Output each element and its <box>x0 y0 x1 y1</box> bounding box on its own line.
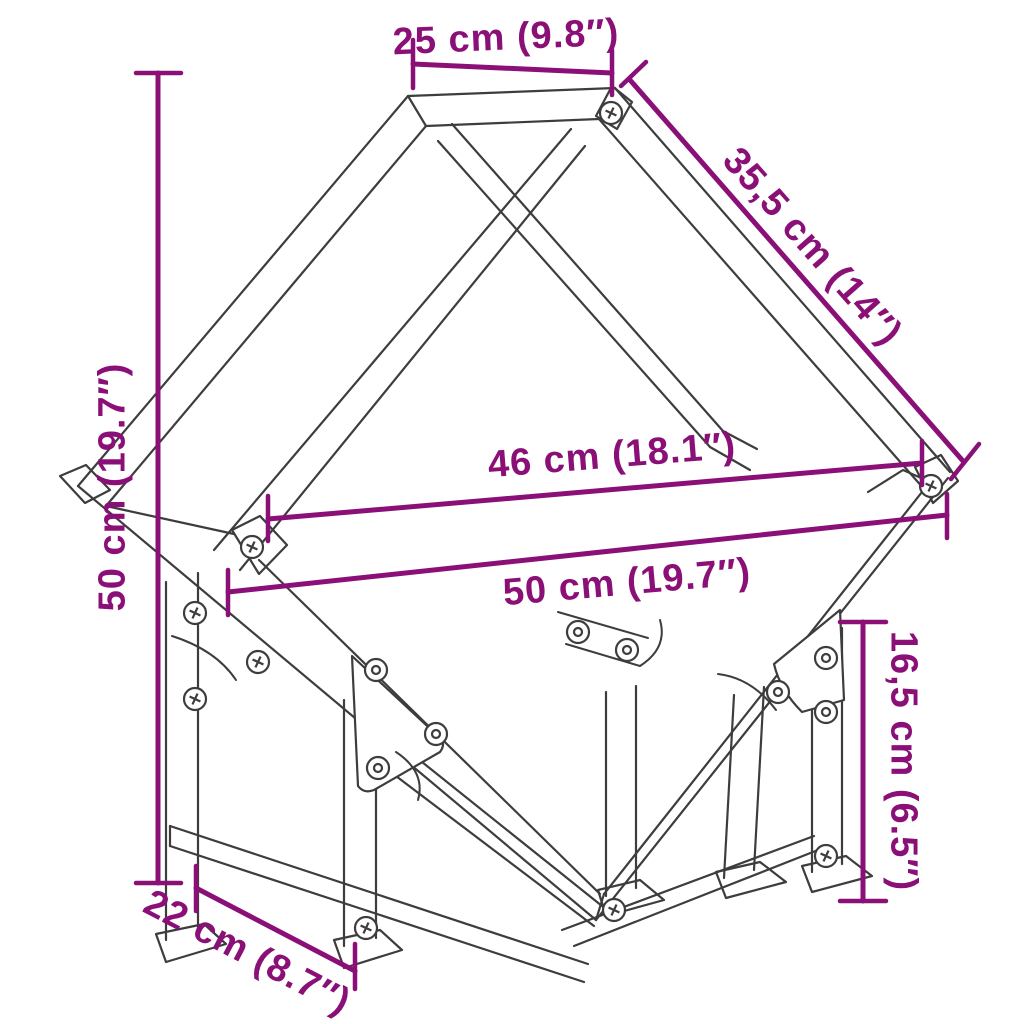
screw-icon <box>355 917 377 939</box>
screw-icon <box>600 102 622 124</box>
screw-icon <box>567 621 589 643</box>
dimension-label-total-height: 50 cm (19.7″) <box>92 363 135 612</box>
dimension-line-total-height <box>136 73 181 883</box>
screw-icon <box>184 688 206 710</box>
dimension-lines <box>136 40 979 989</box>
rack-line-art <box>0 0 1024 1024</box>
screw-icon <box>815 845 837 867</box>
product-dimension-image: 25 cm (9.8″) 35,5 cm (14″) 50 cm (19.7″)… <box>0 0 1024 1024</box>
screw-icon <box>815 647 837 669</box>
dimension-label-leg-height: 16,5 cm (6.5″) <box>882 631 925 891</box>
screw-icon <box>247 651 269 673</box>
screw-icon <box>603 899 625 921</box>
screw-icon <box>184 602 206 624</box>
screw-icon <box>365 659 387 681</box>
dimension-line-leg-height <box>840 622 886 901</box>
screw-icon <box>767 681 789 703</box>
screw-icon <box>367 757 389 779</box>
screw-icon <box>241 536 263 558</box>
screw-icon <box>815 701 837 723</box>
dimension-line-side-depth <box>621 62 979 479</box>
rack-frame <box>60 86 958 920</box>
screw-icon <box>425 723 447 745</box>
screw-icon <box>616 639 638 661</box>
